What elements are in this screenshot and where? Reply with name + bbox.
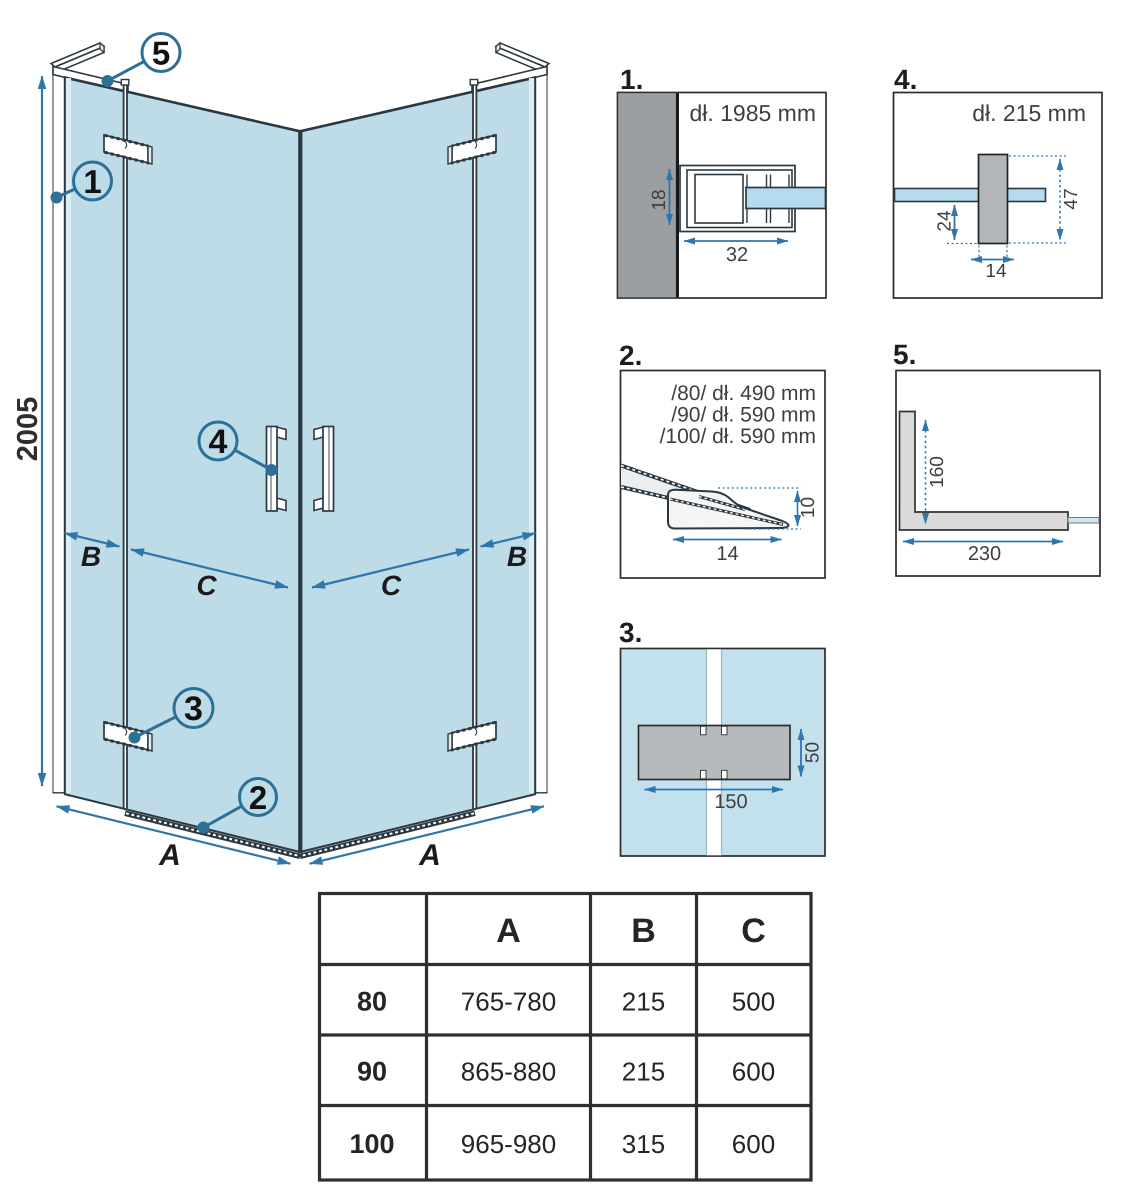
svg-text:18: 18 <box>649 189 670 210</box>
svg-text:50: 50 <box>803 742 824 763</box>
svg-text:4.: 4. <box>894 64 917 95</box>
svg-text:A: A <box>418 839 441 872</box>
svg-text:C: C <box>741 912 766 950</box>
svg-text:dł. 215 mm: dł. 215 mm <box>972 100 1086 126</box>
svg-text:600: 600 <box>732 1129 775 1159</box>
svg-text:1: 1 <box>83 163 101 200</box>
svg-text:90: 90 <box>357 1057 387 1087</box>
svg-text:C: C <box>196 570 217 601</box>
svg-text:/80/ dł. 490 mm: /80/ dł. 490 mm <box>671 382 816 405</box>
svg-text:765-780: 765-780 <box>461 987 556 1017</box>
svg-text:4: 4 <box>209 423 228 461</box>
svg-text:5.: 5. <box>893 339 916 370</box>
svg-text:865-880: 865-880 <box>461 1057 556 1087</box>
svg-text:C: C <box>381 570 402 601</box>
svg-text:160: 160 <box>927 456 948 488</box>
svg-text:B: B <box>507 541 527 572</box>
svg-text:150: 150 <box>714 791 747 813</box>
svg-text:24: 24 <box>935 210 956 232</box>
svg-text:315: 315 <box>622 1129 665 1159</box>
svg-text:215: 215 <box>622 1057 665 1087</box>
svg-text:5: 5 <box>152 35 170 72</box>
svg-text:965-980: 965-980 <box>461 1129 556 1159</box>
svg-text:3: 3 <box>184 690 203 728</box>
svg-text:3.: 3. <box>619 617 642 648</box>
svg-text:2005: 2005 <box>12 397 44 462</box>
svg-text:500: 500 <box>732 987 775 1017</box>
svg-text:2.: 2. <box>619 340 642 371</box>
svg-text:10: 10 <box>798 497 819 518</box>
svg-text:14: 14 <box>716 543 738 565</box>
svg-text:dł. 1985 mm: dł. 1985 mm <box>689 100 816 126</box>
svg-text:14: 14 <box>985 261 1007 282</box>
svg-text:/90/ dł. 590 mm: /90/ dł. 590 mm <box>671 404 816 427</box>
svg-text:2: 2 <box>249 779 267 816</box>
svg-text:1.: 1. <box>620 64 643 95</box>
svg-text:215: 215 <box>622 987 665 1017</box>
svg-text:80: 80 <box>357 987 387 1017</box>
svg-text:100: 100 <box>349 1129 394 1159</box>
svg-text:A: A <box>158 839 181 872</box>
svg-text:230: 230 <box>968 543 1001 565</box>
svg-text:/100/ dł. 590 mm: /100/ dł. 590 mm <box>660 425 816 448</box>
svg-text:600: 600 <box>732 1057 775 1087</box>
svg-text:A: A <box>496 912 521 950</box>
svg-text:B: B <box>81 541 101 572</box>
svg-text:B: B <box>631 912 656 950</box>
svg-text:47: 47 <box>1061 188 1082 209</box>
svg-text:32: 32 <box>726 244 748 266</box>
